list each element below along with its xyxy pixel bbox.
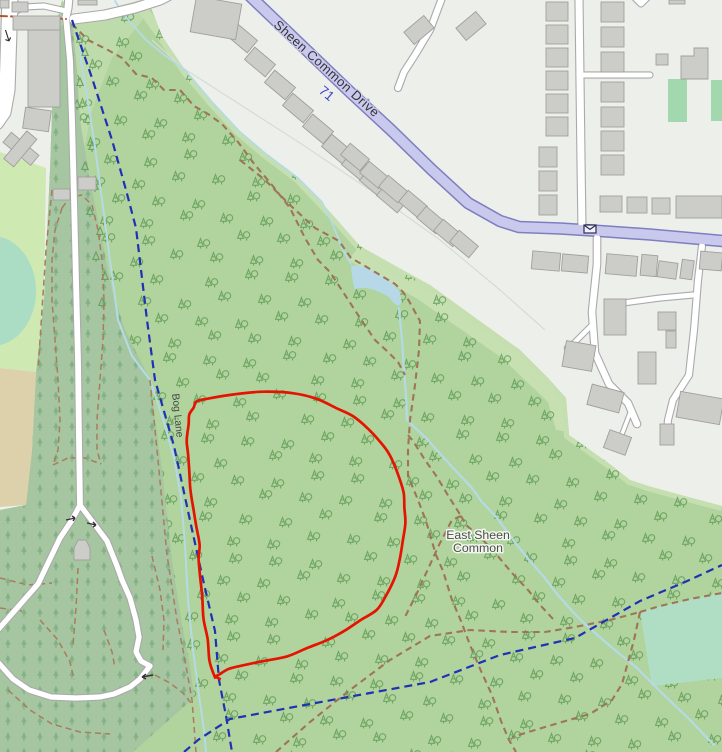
svg-text:Common: Common: [453, 541, 503, 555]
svg-text:East Sheen: East Sheen: [446, 528, 510, 542]
